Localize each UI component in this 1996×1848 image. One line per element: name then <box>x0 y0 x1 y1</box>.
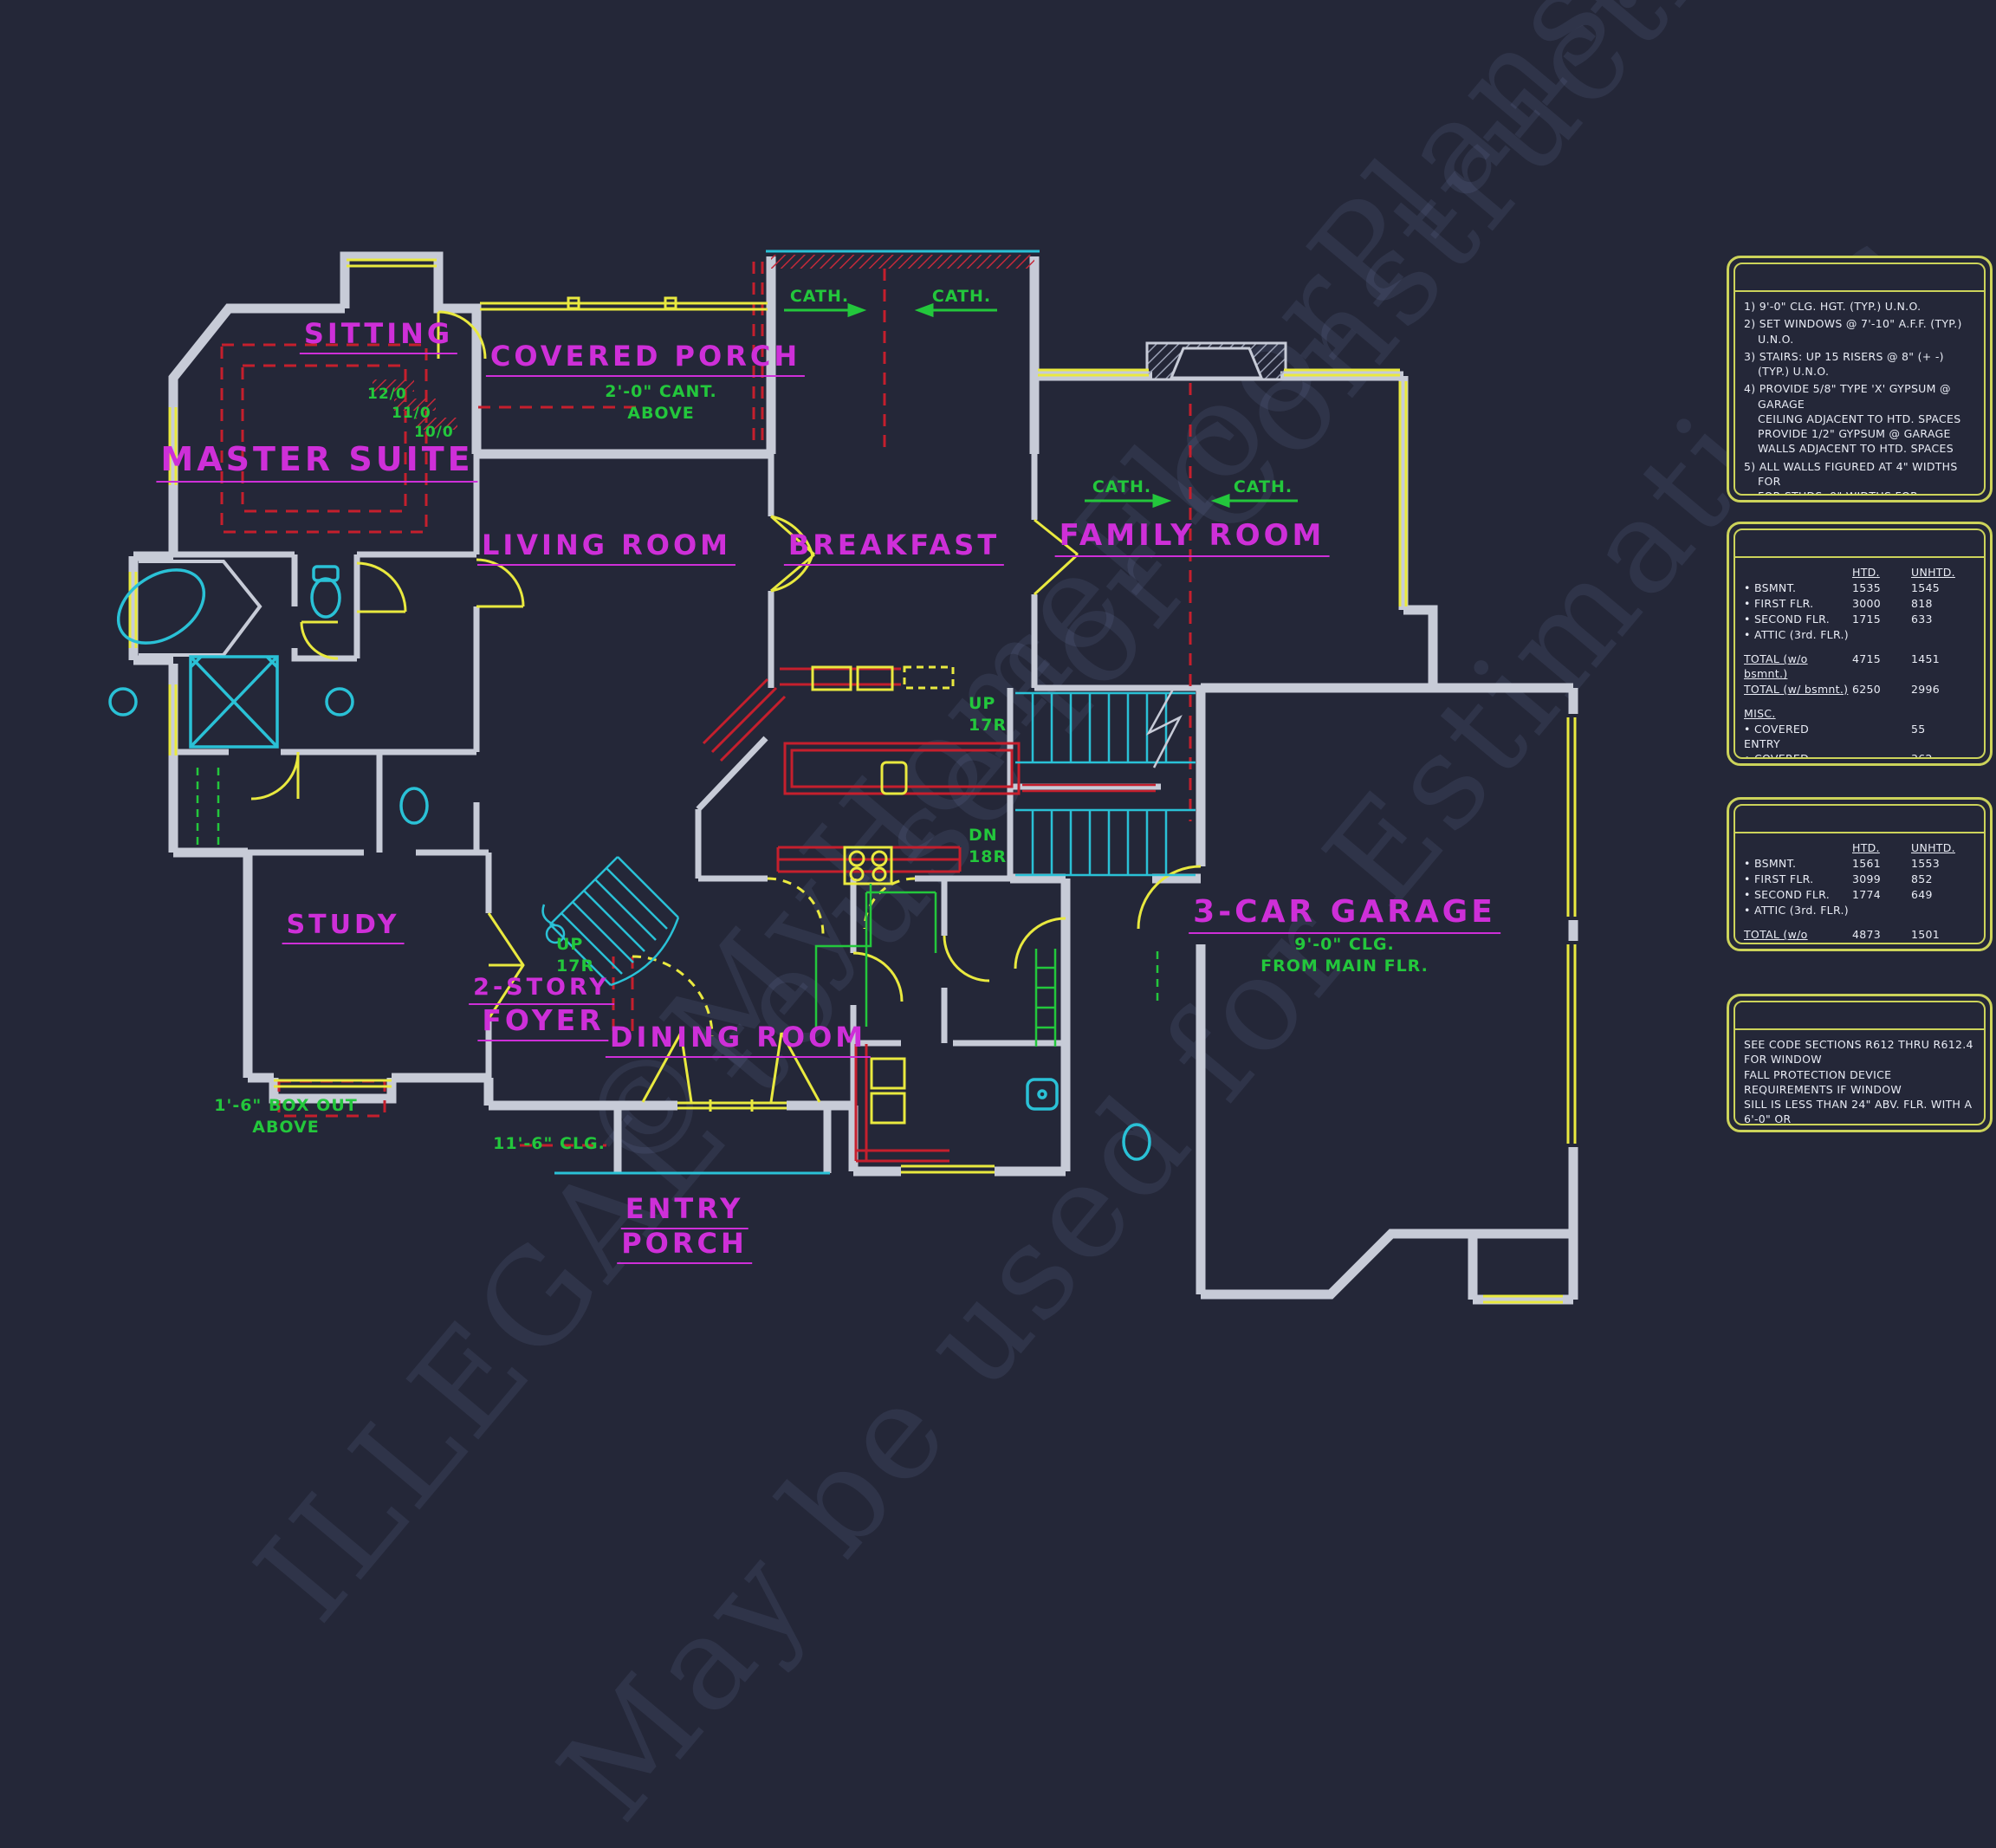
unhtd-value: 362 <box>1911 751 1975 759</box>
htd-value: 3099 <box>1852 872 1908 887</box>
column-header-htd: HTD. <box>1852 840 1908 856</box>
annotation-foyer-ceiling: 11'-6" CLG. <box>493 1133 606 1155</box>
room-label-foyer-line1: 2-STORY <box>469 974 614 1005</box>
room-label-master-suite: MASTER SUITE <box>156 440 477 483</box>
htd-value: 4873 <box>1852 927 1908 944</box>
annotation-height-10-0: 10/0 <box>414 423 454 442</box>
note-item: 2) SET WINDOWS @ 7'-10" A.F.F. (TYP.) U.… <box>1744 316 1975 347</box>
annotation-box-out: 1'-6" BOX OUT ABOVE <box>214 1095 357 1138</box>
row-label: • BSMNT. <box>1744 580 1849 596</box>
annotation-garage-ceiling: 9'-0" CLG. FROM MAIN FLR. <box>1260 934 1429 976</box>
general-notes-list: 1) 9'-0" CLG. HGT. (TYP.) U.N.O. 2) SET … <box>1735 292 1984 496</box>
green-closet-lines <box>198 768 1157 1047</box>
htd-value: 1715 <box>1852 612 1908 627</box>
unhtd-value: 1553 <box>1911 856 1975 872</box>
code-note-panel: SEE CODE SECTIONS R612 THRU R612.4 FOR W… <box>1727 994 1993 1132</box>
annotation-up-risers-back: UP 17R <box>969 693 1007 736</box>
htd-value: 1774 <box>1852 887 1908 903</box>
row-label: • ATTIC (3rd. FLR.) <box>1744 627 1849 643</box>
room-label-garage: 3-CAR GARAGE <box>1189 894 1500 934</box>
unhtd-value: 633 <box>1911 612 1975 627</box>
row-label: • FIRST FLR. <box>1744 872 1849 887</box>
room-label-sitting: SITTING <box>300 317 457 354</box>
row-label: TOTAL (w/o bsmnt.) <box>1744 652 1849 682</box>
porch-roof-band <box>766 251 1040 269</box>
unhtd-value: 818 <box>1911 596 1975 612</box>
row-label: • ATTIC (3rd. FLR.) <box>1744 903 1849 918</box>
table-cell <box>1744 565 1849 580</box>
unhtd-value: 1545 <box>1911 580 1975 596</box>
exterior-walls <box>133 256 1573 1300</box>
row-label: • SECOND FLR. <box>1744 612 1849 627</box>
annotation-cath-family-left: CATH. <box>1092 477 1151 498</box>
table-row-total: TOTAL (w/o bsmnt.) 4873 1501 <box>1744 927 1975 944</box>
table-row: • FIRST FLR. 3099 852 <box>1744 872 1975 887</box>
unhtd-value: 852 <box>1911 872 1975 887</box>
htd-value: 4715 <box>1852 652 1908 682</box>
room-label-family-room: FAMILY ROOM <box>1055 518 1330 557</box>
htd-value: 1535 <box>1852 580 1908 596</box>
room-label-living-room: LIVING ROOM <box>477 528 736 566</box>
back-stairs <box>1015 686 1196 875</box>
room-label-study: STUDY <box>282 910 405 944</box>
note-item: 4) PROVIDE 5/8" TYPE 'X' GYPSUM @ GARAGE… <box>1744 381 1975 456</box>
unhtd-value: 2996 <box>1911 682 1975 697</box>
note-item: 1) 9'-0" CLG. HGT. (TYP.) U.N.O. <box>1744 299 1975 314</box>
table-row: • ATTIC (3rd. FLR.) <box>1744 903 1975 918</box>
row-label: • COVERED ENTRY <box>1744 722 1849 752</box>
kitchen-cabinets <box>703 669 1019 1161</box>
table-row: • ATTIC (3rd. FLR.) <box>1744 627 1975 643</box>
annotation-cath-breakfast-right: CATH. <box>932 286 991 308</box>
fireplace <box>1147 343 1286 379</box>
table-cell <box>1744 840 1849 856</box>
code-note-text: SEE CODE SECTIONS R612 THRU R612.4 FOR W… <box>1744 1037 1975 1125</box>
table-row-misc-header: MISC. <box>1744 706 1975 722</box>
room-label-foyer-line2: FOYER <box>477 1003 608 1041</box>
general-notes-panel-header <box>1735 264 1984 292</box>
column-header-unhtd: UNHTD. <box>1911 565 1975 580</box>
annotation-height-11-0: 11/0 <box>392 404 431 423</box>
note-item: 5) ALL WALLS FIGURED AT 4" WIDTHS FOR FO… <box>1744 459 1975 496</box>
room-label-breakfast: BREAKFAST <box>784 528 1004 566</box>
row-label: TOTAL (w/o bsmnt.) <box>1744 927 1849 944</box>
floorplan-drawing <box>0 0 1996 1497</box>
table-row: • SECOND FLR. 1774 649 <box>1744 887 1975 903</box>
row-label: • FIRST FLR. <box>1744 596 1849 612</box>
column-header-htd: HTD. <box>1852 565 1908 580</box>
misc-label: MISC. <box>1744 706 1849 722</box>
floorplan-canvas: { "watermark": { "line1": "©MyHomeFloorP… <box>0 0 1996 1497</box>
htd-value <box>1852 627 1908 643</box>
htd-value: 6250 <box>1852 682 1908 697</box>
area-table-1-header <box>1735 530 1984 558</box>
code-note-panel-header <box>1735 1002 1984 1030</box>
htd-value: 1561 <box>1852 856 1908 872</box>
htd-value <box>1852 903 1908 918</box>
area-table-2-header <box>1735 806 1984 833</box>
room-label-covered-porch: COVERED PORCH <box>486 340 805 377</box>
table-row: • SECOND FLR. 1715 633 <box>1744 612 1975 627</box>
area-table-1-panel: HTD. UNHTD. • BSMNT. 1535 1545 • FIRST F… <box>1727 522 1993 766</box>
htd-value: 3000 <box>1852 596 1908 612</box>
unhtd-value <box>1911 903 1975 918</box>
area-table-2-panel: HTD. UNHTD. • BSMNT. 1561 1553 • FIRST F… <box>1727 797 1993 951</box>
table-row: • COVERED ENTRY 55 <box>1744 722 1975 752</box>
cath-arrows <box>784 305 1298 506</box>
doors <box>251 312 1201 1102</box>
annotation-cath-family-right: CATH. <box>1234 477 1293 498</box>
room-label-dining-room: DINING ROOM <box>606 1021 871 1058</box>
column-header-unhtd: UNHTD. <box>1911 840 1975 856</box>
unhtd-value: 1451 <box>1911 652 1975 682</box>
table-row: • BSMNT. 1535 1545 <box>1744 580 1975 596</box>
area-table-1: HTD. UNHTD. • BSMNT. 1535 1545 • FIRST F… <box>1735 558 1984 759</box>
table-row-total: TOTAL (w/o bsmnt.) 4715 1451 <box>1744 652 1975 682</box>
table-row: • COVERED PORCH 362 <box>1744 751 1975 759</box>
row-label: • SECOND FLR. <box>1744 887 1849 903</box>
unhtd-value: 1501 <box>1911 927 1975 944</box>
table-row: • BSMNT. 1561 1553 <box>1744 856 1975 872</box>
row-label: • COVERED PORCH <box>1744 751 1849 759</box>
row-label: • BSMNT. <box>1744 856 1849 872</box>
general-notes-panel: 1) 9'-0" CLG. HGT. (TYP.) U.N.O. 2) SET … <box>1727 256 1993 503</box>
room-label-entry-line1: ENTRY <box>621 1192 748 1229</box>
annotation-height-12-0: 12/0 <box>367 385 407 404</box>
area-table-2: HTD. UNHTD. • BSMNT. 1561 1553 • FIRST F… <box>1735 833 1984 944</box>
unhtd-value <box>1911 627 1975 643</box>
note-item: 3) STAIRS: UP 15 RISERS @ 8" (+ -) (TYP.… <box>1744 349 1975 379</box>
annotation-up-risers-foyer: UP 17R <box>556 934 594 976</box>
annotation-dn-risers: DN 18R <box>969 825 1007 867</box>
annotation-cantilever: 2'-0" CANT. ABOVE <box>605 381 717 424</box>
row-label: TOTAL (w/ bsmnt.) <box>1744 682 1849 697</box>
unhtd-value: 55 <box>1911 722 1975 752</box>
annotation-cath-breakfast-left: CATH. <box>790 286 849 308</box>
table-row: • FIRST FLR. 3000 818 <box>1744 596 1975 612</box>
table-row-total: TOTAL (w/ bsmnt.) 6250 2996 <box>1744 682 1975 697</box>
unhtd-value: 649 <box>1911 887 1975 903</box>
room-label-entry-line2: PORCH <box>617 1227 752 1264</box>
